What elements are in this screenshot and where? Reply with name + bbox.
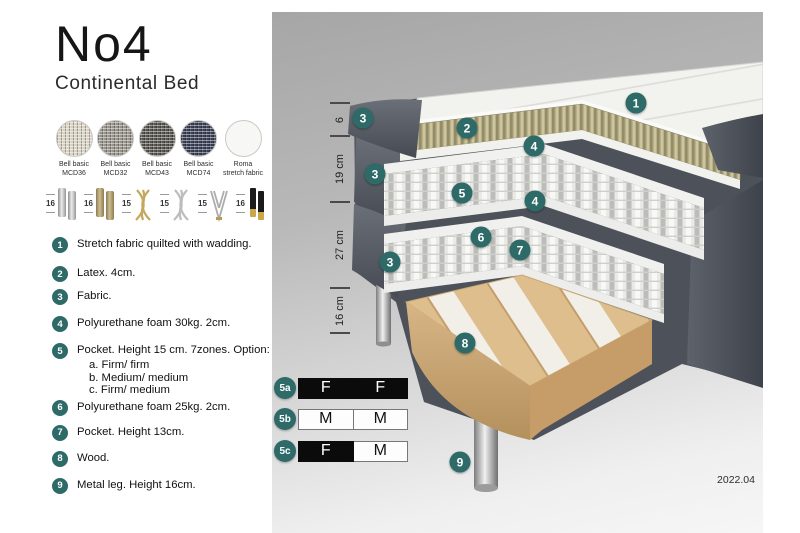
item-text-wrap: Latex. 4cm.: [77, 266, 135, 281]
item-text: Metal leg. Height 16cm.: [77, 478, 196, 493]
leg-option: 15: [198, 186, 230, 220]
item-text-wrap: Wood.: [77, 451, 109, 466]
item-text: Fabric.: [77, 289, 112, 304]
leg-height-value: 16: [46, 195, 55, 212]
dimension-label: 19 cm: [333, 137, 347, 201]
item-text-wrap: Polyurethane foam 30kg. 2cm.: [77, 316, 230, 331]
leg-height-label: 15: [122, 194, 131, 213]
callout-badge: 4: [524, 136, 545, 157]
title-block: No4 Continental Bed: [55, 18, 199, 95]
leg-dim-dash: [46, 212, 55, 213]
fabric-swatch-label-line2: stretch fabric: [223, 170, 263, 179]
callout-badge: 5: [452, 183, 473, 204]
dimension-label: 27 cm: [333, 213, 347, 277]
fabric-swatch-label: Bell basicMCD36: [59, 161, 89, 178]
list-item: 8Wood.: [52, 451, 270, 467]
fabric-swatch-label: Romastretch fabric: [223, 161, 263, 178]
item-number-badge: 4: [52, 316, 68, 332]
item-text-wrap: Metal leg. Height 16cm.: [77, 478, 196, 493]
spec-list: 1Stretch fabric quilted with wadding.2La…: [52, 237, 270, 494]
leg-option: 15: [122, 186, 154, 220]
page-title: No4: [55, 18, 199, 70]
item-text: Stretch fabric quilted with wadding.: [77, 237, 252, 252]
fabric-swatch-label-line1: Bell basic: [142, 161, 172, 170]
silver-twisted-leg-icon: [170, 186, 192, 220]
firmness-table: FF: [298, 378, 408, 399]
firmness-cell: M: [354, 409, 409, 430]
leg-height-value: 15: [160, 195, 169, 212]
info-column: No4 Continental Bed Bell basicMCD36Bell …: [0, 0, 272, 533]
item-number-badge: 2: [52, 266, 68, 282]
fabric-swatch: Bell basicMCD36: [54, 120, 94, 178]
leg-option: 16: [84, 186, 116, 220]
fabric-swatch-label-line1: Roma: [223, 161, 263, 170]
firmness-cell: F: [298, 378, 354, 399]
fabric-swatch-circle: [56, 120, 93, 157]
item-text: Pocket. Height 13cm.: [77, 425, 184, 440]
leg-height-label: 16: [84, 194, 93, 213]
firmness-table: FM: [298, 441, 408, 462]
item-suboption: c. Firm/ medium: [89, 384, 270, 397]
item-text: Latex. 4cm.: [77, 266, 135, 281]
leg-height-label: 15: [160, 194, 169, 213]
fabric-swatch-label: Bell basicMCD43: [142, 161, 172, 178]
fabric-swatch-label-line2: MCD36: [59, 170, 89, 179]
fabric-swatch-label-line1: Bell basic: [59, 161, 89, 170]
callout-badge: 2: [457, 118, 478, 139]
fabric-swatch-circle: [225, 120, 262, 157]
item-suboption: a. Firm/ firm: [89, 359, 270, 372]
leg-height-label: 16: [236, 194, 245, 213]
item-suboption: b. Medium/ medium: [89, 372, 270, 385]
callout-badge: 4: [525, 191, 546, 212]
item-text: Pocket. Height 15 cm. 7zones. Option:: [77, 343, 270, 358]
leg-height-label: 15: [198, 194, 207, 213]
item-text: Wood.: [77, 451, 109, 466]
callout-badge: 7: [510, 240, 531, 261]
item-text: Polyurethane foam 30kg. 2cm.: [77, 316, 230, 331]
page-subtitle: Continental Bed: [55, 73, 199, 95]
leg-dim-dash: [160, 212, 169, 213]
item-number-badge: 7: [52, 425, 68, 441]
leg-options-row: 161615151516: [46, 186, 268, 220]
item-suboptions: a. Firm/ firmb. Medium/ mediumc. Firm/ m…: [89, 359, 270, 397]
callout-badge: 3: [353, 108, 374, 129]
leg-option: 16: [46, 186, 78, 220]
fabric-swatch-label-line2: MCD32: [101, 170, 131, 179]
firmness-row: 5aFF: [274, 377, 408, 399]
list-item: 1Stretch fabric quilted with wadding.: [52, 237, 270, 253]
list-item: 7Pocket. Height 13cm.: [52, 425, 270, 441]
fabric-swatch-row: Bell basicMCD36Bell basicMCD32Bell basic…: [54, 120, 266, 178]
hairpin-leg-icon: [208, 186, 230, 220]
callout-badge: 1: [626, 93, 647, 114]
list-item: 3Fabric.: [52, 289, 270, 305]
leg-dim-dash: [122, 212, 131, 213]
list-item: 2Latex. 4cm.: [52, 266, 270, 282]
item-number-badge: 1: [52, 237, 68, 253]
leg-option: 16: [236, 186, 268, 220]
diagram-panel: 619 cm27 cm16 cm 123435467389 5aFF5bMM5c…: [272, 12, 763, 533]
version-label: 2022.04: [717, 474, 755, 486]
leg-height-value: 16: [236, 195, 245, 212]
firmness-cell: M: [298, 409, 354, 430]
leg-option: 15: [160, 186, 192, 220]
fabric-swatch: Bell basicMCD43: [137, 120, 177, 178]
dimension-tick: [330, 332, 350, 334]
item-number-badge: 6: [52, 400, 68, 416]
firmness-cell: F: [354, 378, 409, 399]
firmness-cell: F: [298, 441, 354, 462]
black-gold-leg-icon: [246, 186, 268, 220]
fabric-swatch-label-line2: MCD43: [142, 170, 172, 179]
callout-badge: 9: [450, 452, 471, 473]
gold-twisted-leg-icon: [132, 186, 154, 220]
fabric-swatch: Romastretch fabric: [220, 120, 266, 178]
callout-badge: 3: [380, 252, 401, 273]
list-item: 4Polyurethane foam 30kg. 2cm.: [52, 316, 270, 332]
firmness-table: MM: [298, 409, 408, 430]
leg-dim-dash: [236, 212, 245, 213]
leg-height-label: 16: [46, 194, 55, 213]
item-text-wrap: Polyurethane foam 25kg. 2cm.: [77, 400, 230, 415]
firmness-cell: M: [354, 441, 409, 462]
item-text-wrap: Fabric.: [77, 289, 112, 304]
list-item: 5Pocket. Height 15 cm. 7zones. Option:a.…: [52, 343, 270, 397]
brass-cylinder-leg-icon: [94, 186, 116, 220]
fabric-swatch-circle: [180, 120, 217, 157]
firmness-row-label: 5c: [274, 440, 296, 462]
leg-height-value: 16: [84, 195, 93, 212]
item-number-badge: 3: [52, 289, 68, 305]
item-text-wrap: Pocket. Height 13cm.: [77, 425, 184, 440]
fabric-swatch: Bell basicMCD32: [96, 120, 136, 178]
item-number-badge: 5: [52, 343, 68, 359]
item-text-wrap: Stretch fabric quilted with wadding.: [77, 237, 252, 252]
leg-dim-dash: [198, 212, 207, 213]
item-text: Polyurethane foam 25kg. 2cm.: [77, 400, 230, 415]
list-item: 6Polyurethane foam 25kg. 2cm.: [52, 400, 270, 416]
leg-dim-dash: [84, 212, 93, 213]
item-number-badge: 9: [52, 478, 68, 494]
leg-height-value: 15: [122, 195, 131, 212]
chrome-cylinder-leg-icon: [56, 186, 78, 220]
fabric-swatch-label: Bell basicMCD32: [101, 161, 131, 178]
leg-height-value: 15: [198, 195, 207, 212]
firmness-row: 5cFM: [274, 440, 408, 462]
dimension-tick: [330, 201, 350, 203]
item-number-badge: 8: [52, 451, 68, 467]
firmness-row-label: 5a: [274, 377, 296, 399]
fabric-swatch-label-line1: Bell basic: [184, 161, 214, 170]
callout-badge: 8: [455, 333, 476, 354]
fabric-swatch-circle: [97, 120, 134, 157]
fabric-swatch: Bell basicMCD74: [179, 120, 219, 178]
fabric-swatch-label: Bell basicMCD74: [184, 161, 214, 178]
item-text-wrap: Pocket. Height 15 cm. 7zones. Option:a. …: [77, 343, 270, 397]
callout-badge: 3: [365, 164, 386, 185]
fabric-swatch-label-line2: MCD74: [184, 170, 214, 179]
fabric-swatch-circle: [139, 120, 176, 157]
list-item: 9Metal leg. Height 16cm.: [52, 478, 270, 494]
fabric-swatch-label-line1: Bell basic: [101, 161, 131, 170]
callout-badge: 6: [471, 227, 492, 248]
firmness-row: 5bMM: [274, 408, 408, 430]
firmness-row-label: 5b: [274, 408, 296, 430]
